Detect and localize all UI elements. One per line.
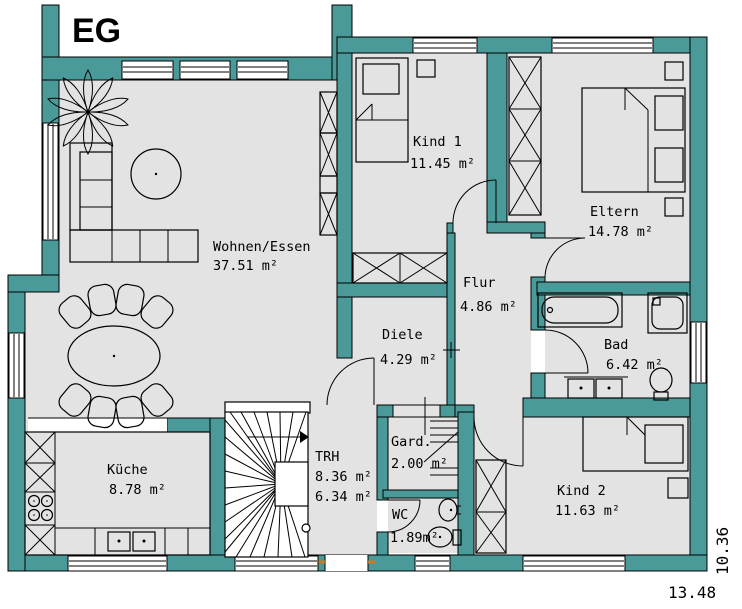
- wall-wc-kind2: [458, 412, 474, 555]
- wall-flur-east-a: [531, 233, 545, 238]
- wall-kueche-trh: [210, 418, 225, 555]
- room-area-kueche: 8.78 m²: [109, 482, 166, 498]
- dimension-width: 13.48: [668, 583, 716, 602]
- room-area2-trh: 6.34 m²: [315, 489, 372, 505]
- floor-plan-drawing: EG Wohnen/Essen 37.51 m² Kind 1 11.45 m²…: [0, 0, 742, 609]
- staircase: [225, 402, 310, 557]
- room-label-kind2: Kind 2: [557, 483, 606, 499]
- floor-plan-page: EG Wohnen/Essen 37.51 m² Kind 1 11.45 m²…: [0, 0, 742, 609]
- window: [43, 123, 58, 240]
- window: [68, 556, 167, 571]
- wall-wohnen-kind1: [337, 53, 352, 358]
- room-label-flur: Flur: [463, 275, 496, 291]
- window: [9, 333, 24, 398]
- room-area-wohnen: 37.51 m²: [213, 258, 278, 274]
- window: [552, 38, 653, 53]
- room-area-trh: 8.36 m²: [315, 469, 372, 485]
- wall-flur-top-a: [447, 223, 453, 233]
- stair-core: [275, 462, 308, 506]
- room-area-diele: 4.29 m²: [380, 352, 437, 368]
- wall-diele-flur: [447, 233, 455, 415]
- room-area-gard: 2.00 m²: [391, 456, 448, 472]
- room-label-bad: Bad: [604, 337, 628, 353]
- entrance-opening: [325, 555, 368, 571]
- room-label-kueche: Küche: [107, 462, 148, 478]
- window: [122, 61, 173, 79]
- stair-railing: [225, 402, 310, 413]
- opening-wohnen-kueche: [28, 418, 167, 432]
- window: [235, 556, 318, 571]
- room-area-wc: 1.89m²: [390, 530, 439, 546]
- window: [523, 556, 625, 571]
- wall-eltern-jog: [487, 222, 545, 233]
- room-area-kind2: 11.63 m²: [555, 503, 620, 519]
- window: [691, 322, 706, 383]
- room-label-wohnen: Wohnen/Essen: [213, 239, 311, 255]
- dimension-height: 10.36: [713, 527, 732, 575]
- window: [415, 556, 450, 571]
- room-label-gard: Gard.: [391, 434, 432, 450]
- room-label-trh: TRH: [315, 449, 339, 465]
- wall-kind1-diele: [337, 283, 455, 297]
- wall-left-step: [8, 275, 59, 292]
- floor-eltern: [507, 53, 690, 295]
- room-area-kind1: 11.45 m²: [410, 156, 475, 172]
- window: [180, 61, 230, 79]
- wall-gard-wc: [383, 490, 465, 498]
- wall-right: [690, 37, 707, 571]
- room-label-diele: Diele: [382, 327, 423, 343]
- wall-diele-south-b: [440, 405, 455, 417]
- wall-diele-south-a: [377, 405, 393, 417]
- room-area-flur: 4.86 m²: [460, 299, 517, 315]
- floor-flur: [455, 233, 531, 417]
- room-label-wc: WC: [392, 507, 408, 523]
- window: [237, 61, 288, 79]
- room-label-kind1: Kind 1: [413, 134, 462, 150]
- wall-trh-gard-a: [377, 417, 388, 500]
- wall-kind1-eltern: [487, 53, 507, 222]
- page-title: EG: [72, 12, 121, 50]
- wall-kind2-top-b: [523, 398, 690, 417]
- wall-trh-gard-b: [377, 532, 388, 555]
- stair-newel: [302, 524, 310, 532]
- room-area-bad: 6.42 m²: [606, 357, 663, 373]
- floor-wohnen-upper: [59, 80, 352, 292]
- window: [413, 38, 477, 53]
- floor-wohnen-lower: [25, 275, 352, 418]
- room-area-eltern: 14.78 m²: [588, 224, 653, 240]
- room-label-eltern: Eltern: [590, 204, 639, 220]
